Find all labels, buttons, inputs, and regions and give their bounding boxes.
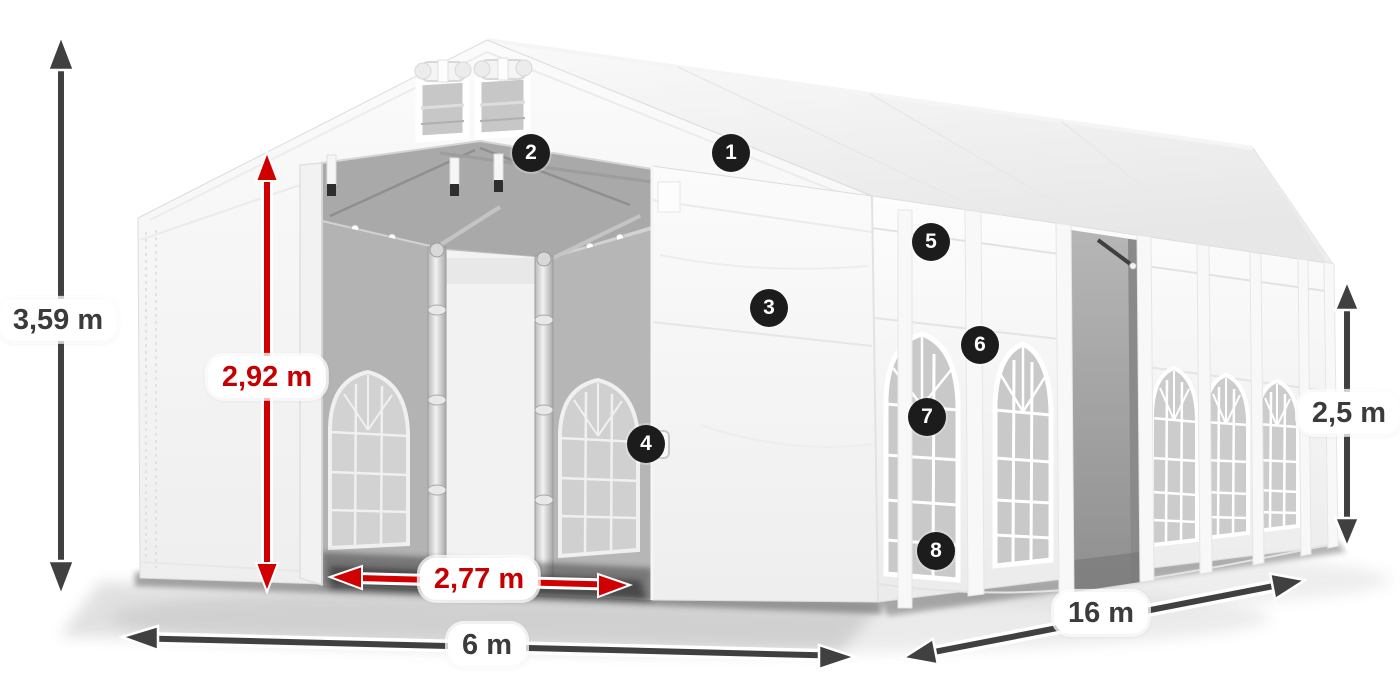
dim-label-clear-height: 2,92 m	[208, 356, 326, 398]
vent-roll-right	[474, 58, 532, 80]
side-window-2	[995, 344, 1051, 566]
dim-label-width: 6 m	[448, 624, 526, 666]
callout-marker-4[interactable]: 4	[627, 425, 665, 463]
dim-label-side-height: 2,5 m	[1298, 392, 1400, 434]
tent-illustration	[0, 0, 1400, 700]
callout-marker-1[interactable]: 1	[712, 134, 750, 172]
callout-marker-5[interactable]: 5	[912, 223, 950, 261]
dim-label-entrance-width: 2,77 m	[420, 558, 538, 600]
vent-roll-left	[415, 60, 471, 82]
side-window-3	[1152, 368, 1197, 545]
dim-label-length: 16 m	[1054, 592, 1148, 634]
callout-marker-3[interactable]: 3	[750, 289, 788, 327]
side-sliding-door	[1071, 230, 1140, 592]
callout-marker-6[interactable]: 6	[961, 326, 999, 364]
callout-marker-7[interactable]: 7	[908, 398, 946, 436]
callout-marker-8[interactable]: 8	[917, 532, 955, 570]
front-right-door-panel	[640, 166, 878, 602]
entrance-opening-interior	[300, 141, 652, 601]
dim-label-total-height: 3,59 m	[0, 299, 117, 341]
callout-marker-2[interactable]: 2	[512, 134, 550, 172]
tent-dimension-diagram: 3,59 m 2,92 m 2,77 m 6 m 16 m 2,5 m 1 2 …	[0, 0, 1400, 700]
